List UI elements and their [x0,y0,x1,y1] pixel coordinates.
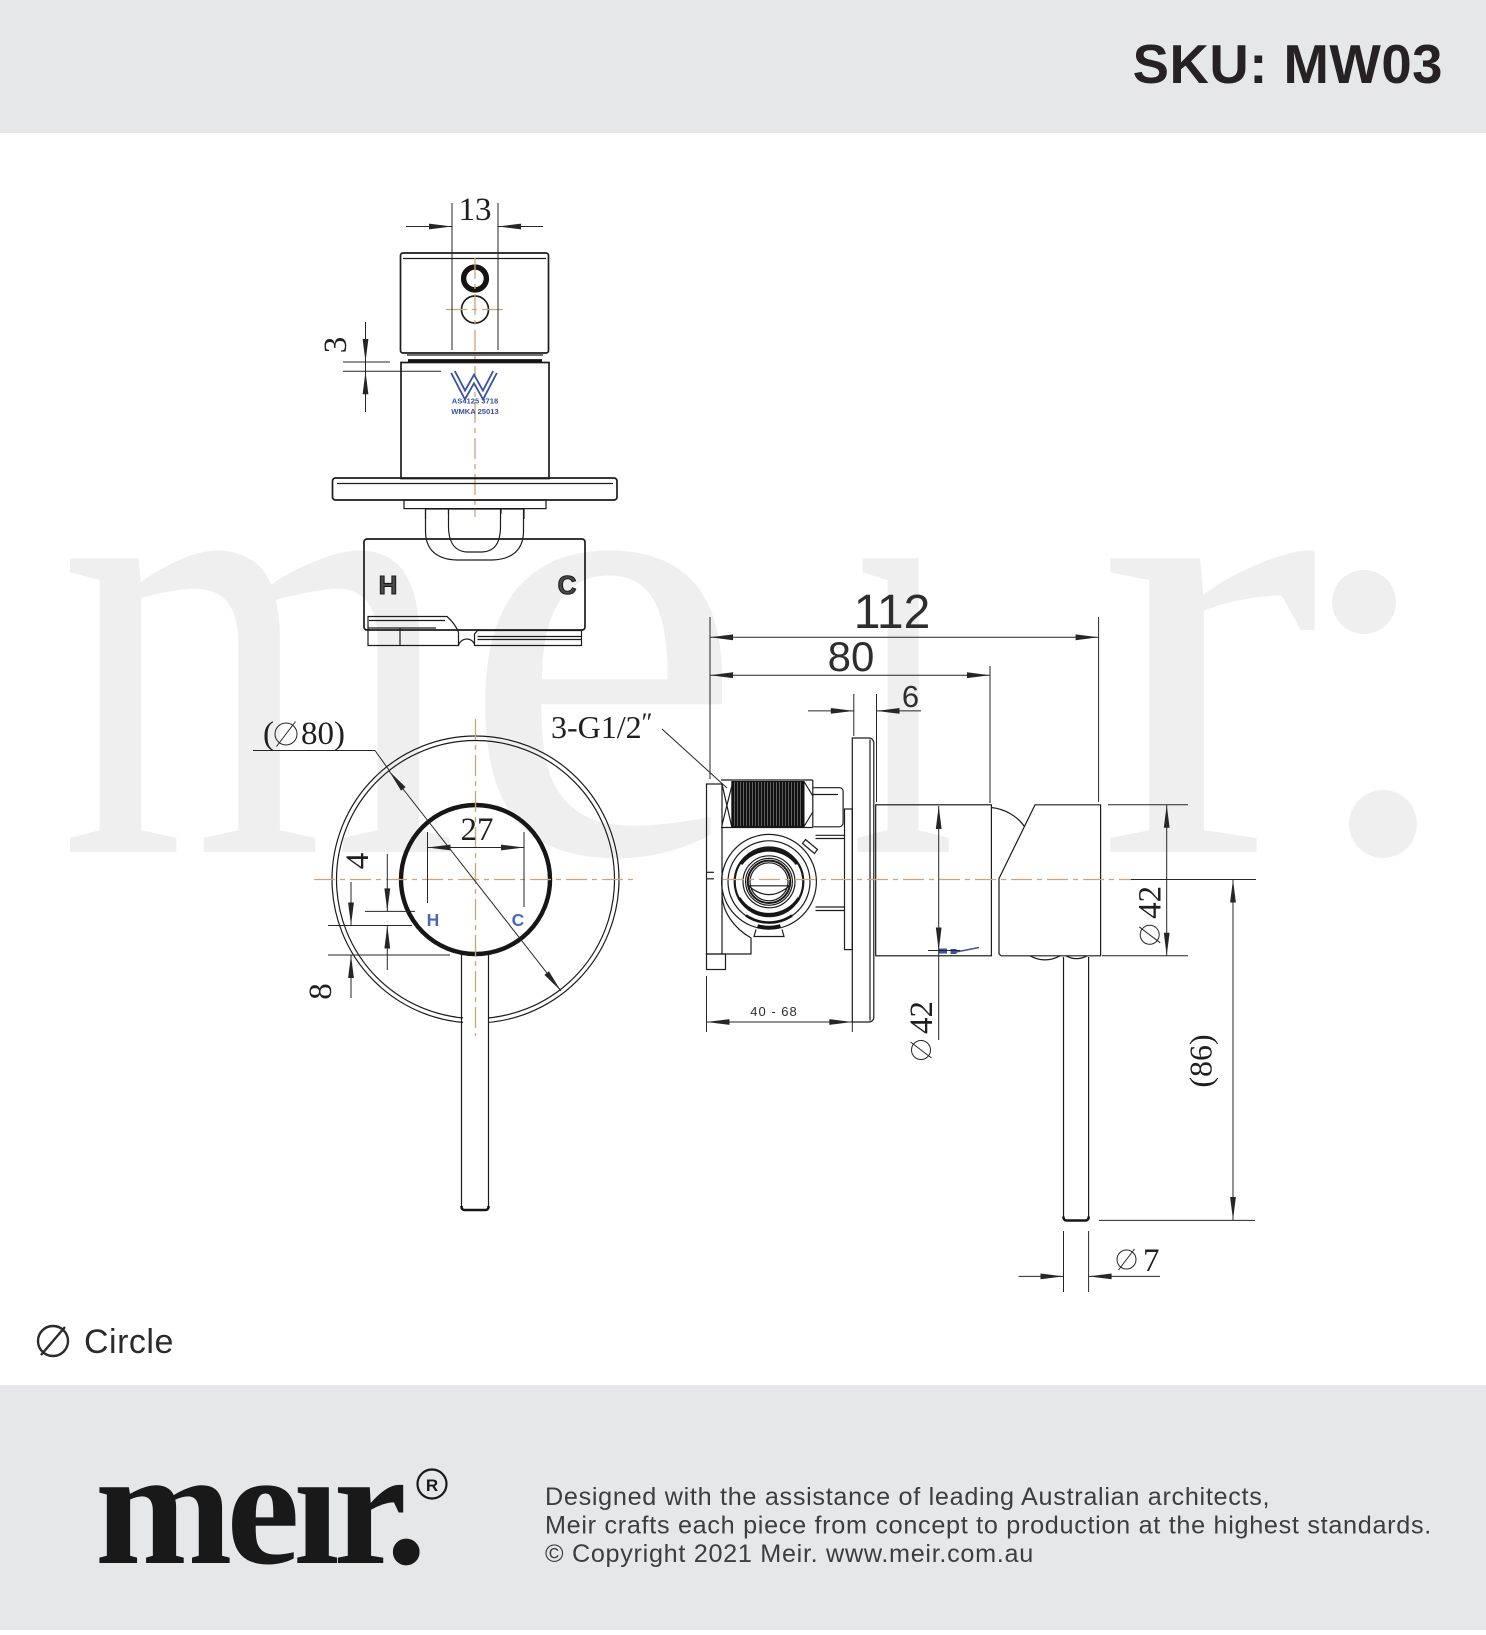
svg-text:WMKA 25013: WMKA 25013 [451,407,498,416]
svg-text:r: r [1097,281,1321,990]
svg-text:H: H [427,910,440,930]
svg-text:© Copyright 2021 Meir. www.mei: © Copyright 2021 Meir. www.meir.com.au [545,1540,1034,1568]
svg-text:6: 6 [902,679,919,714]
svg-text:13: 13 [459,192,492,228]
svg-text:R: R [426,1476,438,1495]
svg-text:42: 42 [1133,886,1169,919]
svg-text:4: 4 [340,853,376,870]
svg-text:80: 80 [828,633,875,680]
svg-text:AS4125 3718: AS4125 3718 [452,397,498,406]
svg-text:(: ( [263,716,274,752]
svg-text:7: 7 [1143,1243,1160,1279]
svg-text:(86): (86) [1183,1034,1219,1087]
svg-text:3: 3 [318,337,354,354]
svg-text:meır.: meır. [95,1416,421,1599]
svg-text:Designed with the assistance o: Designed with the assistance of leading … [545,1483,1270,1511]
svg-text:Circle: Circle [84,1323,174,1361]
svg-text:42: 42 [904,1001,940,1034]
svg-text:80): 80) [301,716,345,752]
svg-text:Meir crafts each piece from co: Meir crafts each piece from concept to p… [545,1512,1432,1540]
svg-text:3-G1/2″: 3-G1/2″ [551,708,653,745]
svg-text:C: C [558,570,577,600]
svg-text:8: 8 [303,983,339,1000]
svg-text:40 - 68: 40 - 68 [750,1004,797,1019]
svg-text:H: H [379,570,398,600]
svg-text:SKU: MW03: SKU: MW03 [1133,34,1443,95]
svg-text:m: m [59,283,457,991]
svg-text:C: C [512,910,525,930]
svg-text:27: 27 [461,812,494,848]
svg-text:112: 112 [854,586,931,639]
